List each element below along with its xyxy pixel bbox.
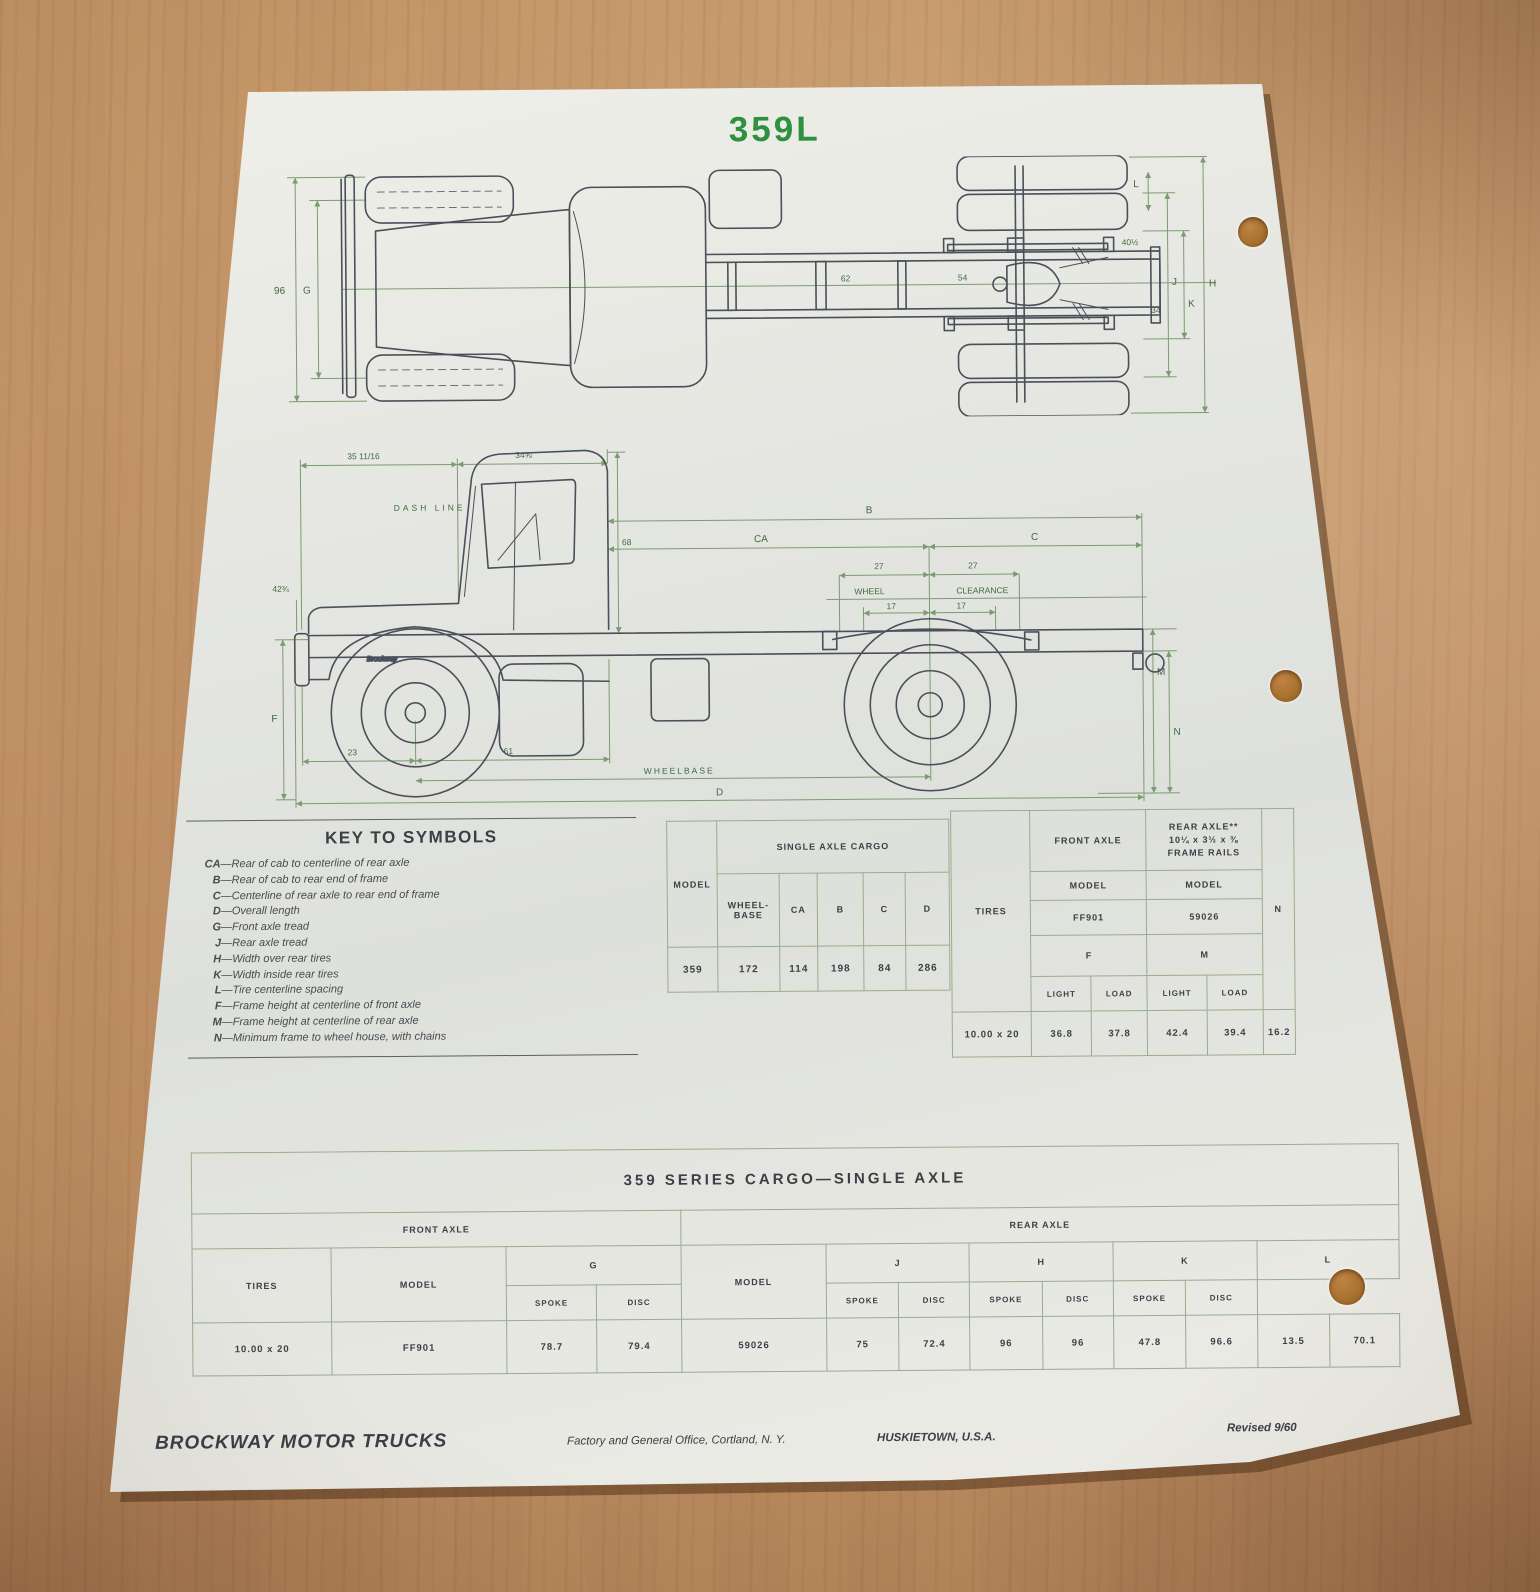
front-bumper: [345, 175, 356, 397]
brockway-script: Brockway: [367, 656, 398, 663]
front-wheel-tire: [331, 628, 500, 797]
dim-k-label: K: [1188, 299, 1195, 310]
punch-hole-top: [1238, 217, 1268, 247]
dim-n-label: N: [1173, 727, 1180, 738]
frame-rail: [309, 629, 1143, 658]
rear-dual-tire: [959, 381, 1129, 416]
wheel-clearance-word1: WHEEL: [854, 586, 885, 596]
under-cab-tank: [499, 663, 584, 756]
model-header-cell: MODEL: [667, 821, 718, 947]
dim-hood: 42¾: [272, 584, 290, 594]
dim-mid1: 62: [841, 273, 851, 283]
key-item: N—Minimum frame to wheel house, with cha…: [188, 1028, 638, 1047]
rear-axle-line: [1015, 166, 1017, 402]
table-row: MODEL SINGLE AXLE CARGO: [667, 819, 949, 874]
rear-spring-left: [948, 243, 1108, 250]
rear-dual-tire: [957, 193, 1127, 230]
dash-line-label: DASH LINE: [394, 502, 466, 513]
top-view-diagram: 96 G 62 54 40½ 34 J K H L: [257, 154, 1244, 422]
footer-brand: BROCKWAY MOTOR TRUCKS: [155, 1431, 447, 1455]
battery-box: [651, 658, 709, 720]
dim-j-label: J: [1172, 277, 1177, 288]
rear-spring-right: [948, 317, 1108, 324]
side-view-diagram: 35 11/16 34⅝ DASH LINE 42¾ 68 B CA C 27 …: [265, 415, 1188, 817]
dim-wc-right: 27: [968, 560, 978, 570]
key-to-symbols-section: KEY TO SYMBOLS CA—Rear of cab to centerl…: [186, 817, 638, 1058]
door-window: [481, 480, 576, 569]
wheelbase-label: WHEELBASE: [644, 765, 715, 776]
front-tire-right: [366, 354, 514, 401]
table-data-row: 10.00 x 20 FF901 78.7 79.4 59026 75 72.4…: [193, 1314, 1400, 1376]
dim-c-label: C: [1031, 532, 1038, 543]
vent-window: [498, 514, 540, 560]
dim-f-label: F: [271, 714, 277, 725]
dim-dash-to-cab: 34⅝: [515, 450, 533, 460]
table-row: 10.00 x 20 36.8 37.8 42.4 39.4 16.2: [952, 1009, 1295, 1057]
footer-revised: Revised 9/60: [1227, 1422, 1297, 1435]
table-row: 359 172 114 198 84 286: [668, 945, 950, 992]
tires-header-cell: TIRES: [951, 810, 1032, 1012]
series-table-title: 359 SERIES CARGO—SINGLE AXLE: [191, 1144, 1398, 1214]
rear-dual-tire: [957, 155, 1127, 190]
rear-dual-tire: [958, 343, 1128, 378]
front-axle-header-cell: FRONT AXLE: [1030, 810, 1146, 872]
footer: BROCKWAY MOTOR TRUCKS Factory and Genera…: [155, 1422, 1345, 1465]
front-bumper: [295, 634, 309, 686]
table-row: TIRES FRONT AXLE REAR AXLE** 10¼ x 3½ x …: [951, 808, 1294, 872]
photo-of-spec-sheet: 359L 96: [0, 0, 1540, 1592]
span-header-cell: SINGLE AXLE CARGO: [717, 819, 949, 874]
page-title: 359L: [635, 109, 915, 151]
dim-b-label: B: [866, 505, 873, 516]
dim-h-label: H: [1209, 278, 1216, 289]
dim-d-label: D: [716, 787, 723, 798]
n-header-cell: N: [1261, 808, 1295, 1009]
dim-mid2: 54: [958, 272, 968, 282]
dim-wc2-left: 17: [886, 601, 896, 611]
box-behind-cab: [709, 170, 781, 229]
punch-hole-bottom: [1329, 1269, 1365, 1305]
series-cargo-table: 359 SERIES CARGO—SINGLE AXLE FRONT AXLE …: [191, 1143, 1401, 1376]
table-title-row: 359 SERIES CARGO—SINGLE AXLE: [191, 1144, 1398, 1214]
wheel-clearance-word2: CLEARANCE: [956, 585, 1008, 595]
dim-wc2-right: 17: [956, 600, 966, 610]
dim-wc-left: 27: [874, 561, 884, 571]
dim-cab-height: 68: [622, 537, 632, 547]
pintle-hook: [1146, 654, 1164, 672]
dim-width-outer: 96: [274, 286, 286, 297]
side-view-dimension-labels: 35 11/16 34⅝ DASH LINE 42¾ 68 B CA C 27 …: [269, 445, 1181, 802]
single-axle-cargo-table: MODEL SINGLE AXLE CARGO WHEEL-BASE CA B …: [666, 819, 950, 993]
dim-bumper-to-dash: 35 11/16: [347, 451, 380, 461]
rear-axle-header-cell: REAR AXLE** 10¼ x 3½ x ⅜ FRAME RAILS: [1146, 809, 1262, 871]
dim-l-label: L: [1133, 179, 1139, 190]
side-view-dimension-lines: [273, 445, 1180, 808]
dim-front-overhang: 23: [348, 747, 358, 757]
key-to-symbols-heading: KEY TO SYMBOLS: [186, 826, 636, 850]
front-tire-left: [365, 176, 513, 223]
pintle-mount: [1133, 653, 1143, 669]
axle-frame-heights-table: TIRES FRONT AXLE REAR AXLE** 10¼ x 3½ x …: [950, 808, 1296, 1058]
dim-ca-label: CA: [754, 534, 768, 545]
sheet-content: 359L 96: [0, 0, 1540, 1592]
side-view-truck-outline: Brockway: [293, 446, 1165, 798]
dim-g-label: G: [303, 286, 311, 297]
rear-model-cell: 59026: [1146, 899, 1262, 935]
dim-r-upper: 40½: [1122, 237, 1139, 247]
front-model-cell: FF901: [1031, 900, 1147, 936]
footer-address: Factory and General Office, Cortland, N.…: [567, 1434, 786, 1448]
top-view-dimension-lines: [287, 156, 1217, 419]
footer-city: HUSKIETOWN, U.S.A.: [877, 1431, 996, 1444]
punch-hole-middle: [1270, 670, 1302, 702]
